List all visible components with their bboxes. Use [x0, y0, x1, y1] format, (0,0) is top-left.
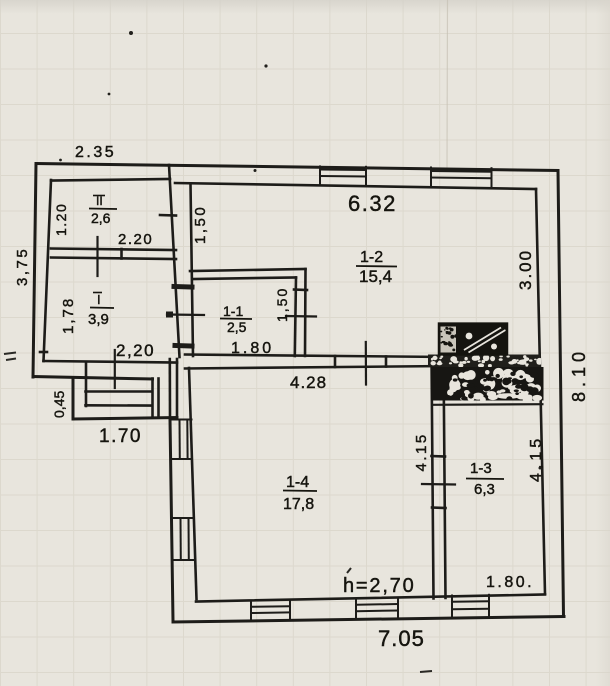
- svg-text:7.05: 7.05: [378, 626, 425, 651]
- svg-text:0,45: 0,45: [51, 391, 67, 418]
- svg-text:3,75: 3,75: [14, 247, 31, 286]
- svg-text:1.70: 1.70: [99, 426, 142, 447]
- svg-text:3.00: 3.00: [516, 249, 535, 290]
- svg-text:2.35: 2.35: [75, 144, 116, 161]
- svg-text:15,4: 15,4: [359, 267, 392, 286]
- svg-text:4,15: 4,15: [528, 435, 545, 482]
- svg-text:1-4: 1-4: [286, 474, 309, 491]
- svg-text:6,3: 6,3: [474, 481, 495, 498]
- svg-text:1,50: 1,50: [192, 205, 209, 244]
- svg-text:2.20: 2.20: [118, 231, 153, 248]
- svg-text:1.20: 1.20: [53, 203, 69, 236]
- svg-text:1.80: 1.80: [231, 340, 274, 357]
- svg-text:4.15: 4.15: [413, 432, 430, 471]
- svg-text:h=2,70: h=2,70: [343, 575, 416, 597]
- svg-text:1.80.: 1.80.: [486, 574, 534, 591]
- svg-text:1-3: 1-3: [470, 460, 492, 477]
- svg-text:1-2: 1-2: [360, 249, 383, 266]
- svg-text:3,9: 3,9: [88, 311, 109, 328]
- svg-text:2,6: 2,6: [91, 210, 111, 226]
- svg-text:2,5: 2,5: [227, 319, 247, 335]
- svg-text:2,20: 2,20: [116, 341, 155, 360]
- svg-text:8.10: 8.10: [569, 347, 589, 402]
- svg-text:1,50: 1,50: [274, 287, 290, 322]
- svg-text:4.28: 4.28: [290, 373, 327, 392]
- svg-text:1,78: 1,78: [60, 297, 77, 334]
- svg-text:I: I: [97, 292, 101, 307]
- svg-text:1-1: 1-1: [223, 303, 243, 319]
- svg-text:17,8: 17,8: [283, 496, 314, 513]
- svg-text:6.32: 6.32: [348, 191, 397, 216]
